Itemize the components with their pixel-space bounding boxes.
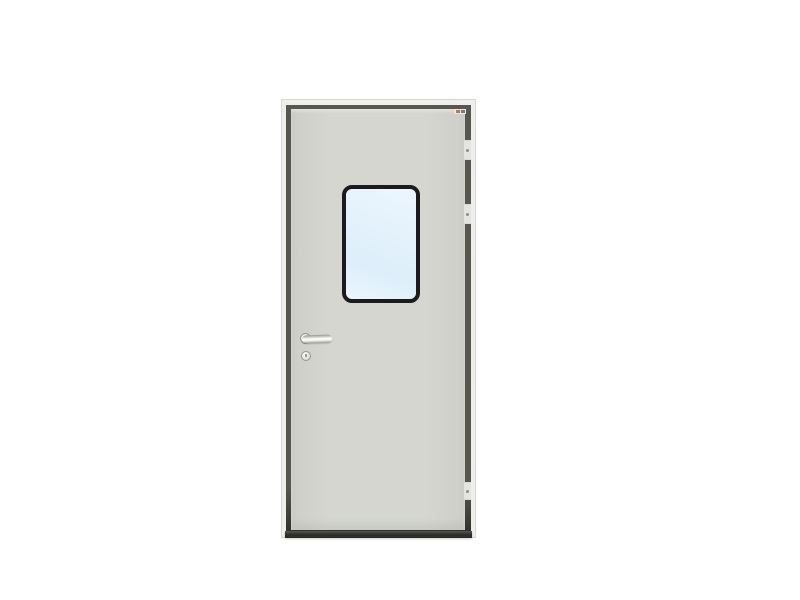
brand-mark-slate-icon (461, 110, 465, 113)
brand-label (454, 109, 466, 114)
keyhole-escutcheon (301, 351, 311, 361)
brand-mark-orange-icon (456, 110, 460, 113)
door-leaf (291, 109, 465, 530)
door-bottom-shadow (285, 531, 472, 538)
hinge-bottom (464, 482, 471, 500)
window-glass (346, 189, 416, 299)
hinge-pin-icon (466, 149, 469, 152)
keyhole-pin (305, 354, 307, 357)
hinge-pin-icon (466, 213, 469, 216)
hinge-top (464, 140, 471, 160)
product-photo (0, 0, 800, 600)
lever-handle (302, 334, 332, 343)
vision-window (342, 185, 420, 303)
hinge-pin-icon (466, 490, 469, 493)
hinge-upper-middle (464, 204, 471, 224)
